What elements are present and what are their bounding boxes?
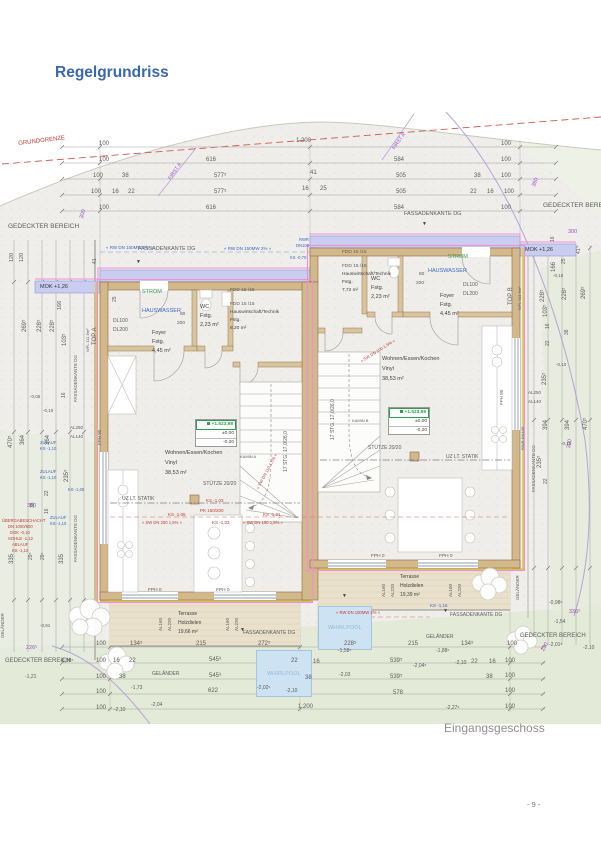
- stairs-left: [240, 382, 302, 522]
- drawing-caption: Eingangsgeschoss: [444, 721, 545, 735]
- elevation-marker-left: +1.523,98 ±0,00 -0,20: [195, 419, 237, 447]
- whirlpool-label: WHIRLPOOL: [328, 625, 362, 631]
- elevation-absolute: +1.523,98: [389, 408, 429, 418]
- terrace-left: [110, 600, 300, 646]
- whirlpool-left: WHIRLPOOL: [256, 650, 312, 697]
- elevation-zero: ±0,00: [389, 418, 429, 427]
- elevation-abs-value: +1.523,98: [212, 422, 233, 427]
- whirlpool-label: WHIRLPOOL: [267, 671, 301, 677]
- page-number: - 9 -: [527, 800, 540, 809]
- elevation-absolute: +1.523,98: [196, 420, 236, 430]
- elevation-marker-right: +1.523,98 ±0,00 -0,20: [388, 407, 430, 435]
- level-flag-icon: [207, 422, 210, 425]
- elevation-abs-value: +1.523,98: [405, 410, 426, 415]
- mok-label-right: MOK +1,26: [520, 244, 576, 256]
- stairs-right: [318, 352, 380, 492]
- document-page: Regelgrundriss: [0, 0, 601, 850]
- mok-label-left: MOK +1,26: [35, 281, 100, 293]
- facade-band-right: [310, 236, 520, 248]
- whirlpool-right: WHIRLPOOL: [318, 606, 372, 650]
- elevation-base: -0,20: [196, 439, 236, 447]
- elevation-base: -0,20: [389, 427, 429, 435]
- facade-band-left: [100, 270, 310, 282]
- level-flag-icon: [400, 410, 403, 413]
- elevation-zero: ±0,00: [196, 430, 236, 439]
